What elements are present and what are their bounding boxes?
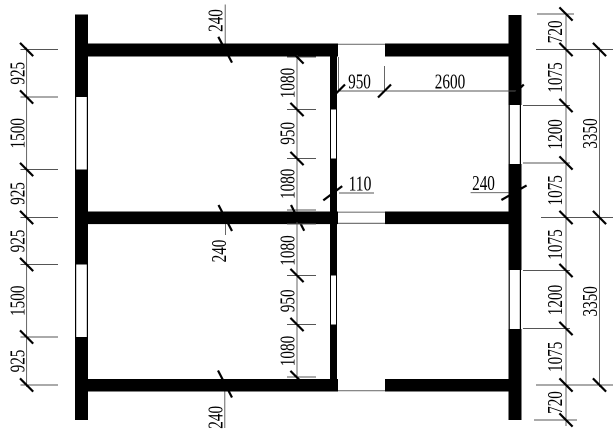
svg-text:1080: 1080 bbox=[276, 235, 300, 265]
svg-text:950: 950 bbox=[276, 289, 300, 312]
svg-text:240: 240 bbox=[472, 171, 495, 195]
svg-text:950: 950 bbox=[276, 122, 300, 145]
svg-text:1200: 1200 bbox=[543, 119, 567, 149]
svg-text:240: 240 bbox=[204, 9, 228, 32]
svg-text:1500: 1500 bbox=[6, 286, 30, 316]
svg-text:720: 720 bbox=[543, 20, 567, 43]
svg-text:3350: 3350 bbox=[578, 286, 602, 316]
svg-text:1080: 1080 bbox=[276, 336, 300, 366]
svg-text:1080: 1080 bbox=[276, 68, 300, 98]
svg-text:1075: 1075 bbox=[543, 229, 567, 259]
svg-text:1200: 1200 bbox=[543, 285, 567, 315]
svg-text:1075: 1075 bbox=[543, 175, 567, 205]
svg-text:1075: 1075 bbox=[543, 62, 567, 92]
svg-text:1075: 1075 bbox=[543, 342, 567, 372]
svg-text:240: 240 bbox=[207, 240, 231, 263]
svg-text:925: 925 bbox=[6, 230, 30, 253]
svg-text:950: 950 bbox=[348, 70, 371, 94]
svg-text:2600: 2600 bbox=[435, 70, 465, 94]
svg-text:720: 720 bbox=[543, 391, 567, 414]
svg-text:925: 925 bbox=[6, 350, 30, 373]
svg-text:3350: 3350 bbox=[578, 118, 602, 148]
svg-text:1080: 1080 bbox=[276, 169, 300, 199]
svg-text:110: 110 bbox=[349, 172, 372, 196]
svg-text:925: 925 bbox=[6, 182, 30, 205]
svg-text:1500: 1500 bbox=[6, 118, 30, 148]
svg-text:925: 925 bbox=[6, 62, 30, 85]
svg-text:240: 240 bbox=[204, 406, 228, 429]
